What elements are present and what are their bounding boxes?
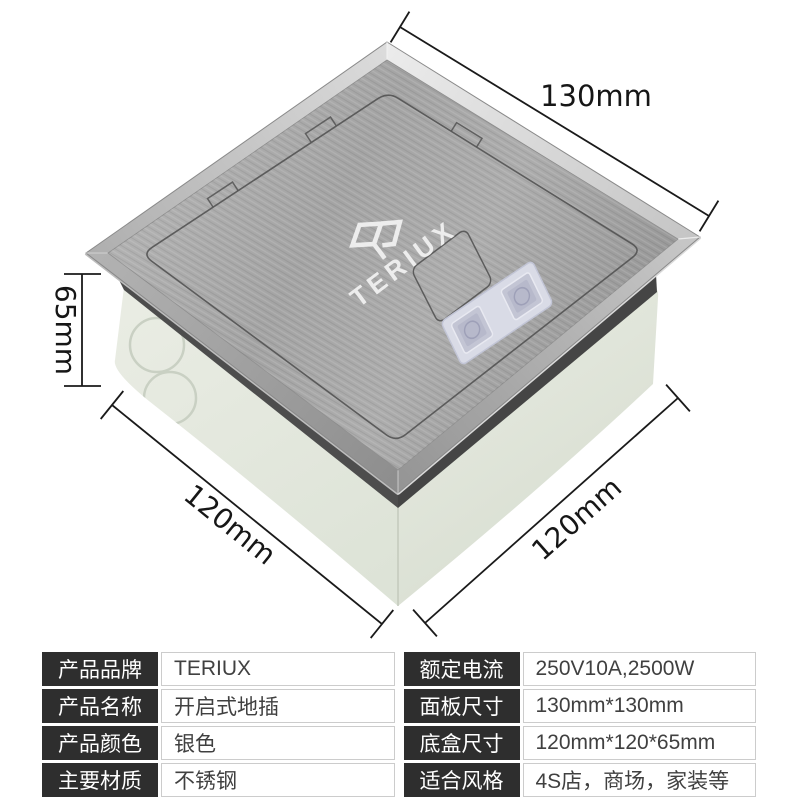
spec-value: 120mm*120*65mm [523, 726, 757, 760]
table-row: 产品名称 开启式地插 [42, 689, 395, 723]
dim-130mm-label: 130mm [540, 79, 652, 113]
table-row: 面板尺寸 130mm*130mm [404, 689, 757, 723]
product-drawing: TERIUX [0, 0, 800, 650]
spec-value: 开启式地插 [161, 689, 395, 723]
spec-value: TERIUX [161, 652, 395, 686]
table-row: 产品颜色 银色 [42, 726, 395, 760]
spec-table: 产品品牌 TERIUX 产品名称 开启式地插 产品颜色 银色 主要材质 不锈钢 … [42, 652, 756, 797]
spec-label: 底盒尺寸 [404, 726, 520, 760]
spec-label: 适合风格 [404, 763, 520, 797]
spec-label: 额定电流 [404, 652, 520, 686]
spec-label: 面板尺寸 [404, 689, 520, 723]
spec-label: 主要材质 [42, 763, 158, 797]
spec-label: 产品名称 [42, 689, 158, 723]
table-row: 主要材质 不锈钢 [42, 763, 395, 797]
spec-value: 250V10A,2500W [523, 652, 757, 686]
dim-65mm-label: 65mm [49, 285, 82, 375]
table-row: 额定电流 250V10A,2500W [404, 652, 757, 686]
spec-value: 4S店，商场，家装等 [523, 763, 757, 797]
spec-table-left: 产品品牌 TERIUX 产品名称 开启式地插 产品颜色 银色 主要材质 不锈钢 [42, 652, 395, 797]
spec-value: 130mm*130mm [523, 689, 757, 723]
spec-label: 产品颜色 [42, 726, 158, 760]
table-row: 底盒尺寸 120mm*120*65mm [404, 726, 757, 760]
floor-socket-illustration: TERIUX [0, 0, 800, 650]
table-row: 适合风格 4S店，商场，家装等 [404, 763, 757, 797]
table-row: 产品品牌 TERIUX [42, 652, 395, 686]
spec-value: 银色 [161, 726, 395, 760]
spec-label: 产品品牌 [42, 652, 158, 686]
spec-table-right: 额定电流 250V10A,2500W 面板尺寸 130mm*130mm 底盒尺寸… [404, 652, 757, 797]
spec-value: 不锈钢 [161, 763, 395, 797]
